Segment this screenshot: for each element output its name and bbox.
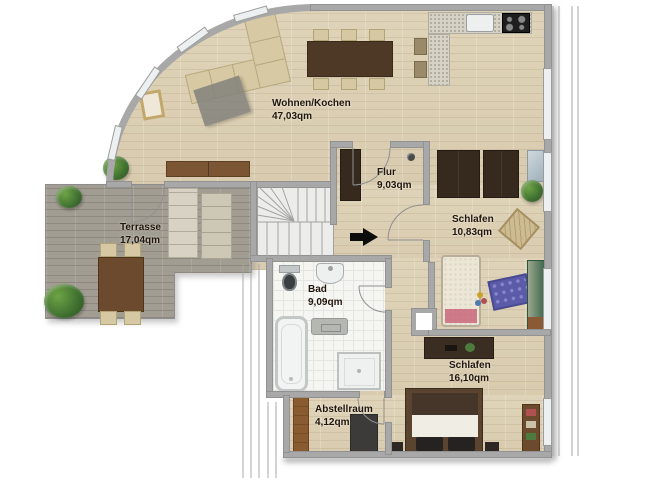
window [543,152,552,212]
room-name: Abstellraum [315,403,373,416]
staircase [257,187,334,258]
wall-chimney-void [416,313,432,330]
desk [424,337,494,359]
outdoor-chair [100,311,117,325]
dining-chair [341,78,357,90]
room-name: Terrasse [120,221,161,234]
dining-chair [341,29,357,41]
wall [330,145,337,225]
toys [477,292,483,298]
room-name: Bad [308,283,342,296]
room-area: 4,12qm [315,416,373,429]
floor-plan: Wohnen/Kochen 47,03qm Flur 9,03qm Schlaf… [0,0,650,480]
kitchen-counter [428,34,450,86]
plant [56,186,82,208]
room-label-schlafen2: Schlafen 16,10qm [449,359,491,385]
bar-stool [414,38,427,55]
outdoor-table [98,257,144,312]
window [543,398,552,446]
wall [283,395,290,453]
sun-lounger [201,193,232,259]
dining-chair [369,29,385,41]
room-name: Schlafen [449,359,491,372]
room-label-bad: Bad 9,09qm [308,283,342,309]
outdoor-chair [124,311,141,325]
wall [385,422,392,455]
window [543,268,552,330]
wooden-door-panel [293,396,309,452]
bedroom-wardrobe [437,150,480,198]
room-label-terrasse: Terrasse 17,04qm [120,221,161,247]
room-area: 17,04qm [120,234,161,247]
room-name: Flur [377,166,411,179]
room-label-flur: Flur 9,03qm [377,166,411,192]
wall [385,258,392,288]
toilet [279,265,300,292]
bar-stool [414,61,427,78]
sun-lounger [168,188,198,258]
wall [250,181,257,262]
room-label-abstellraum: Abstellraum 4,12qm [315,403,373,429]
wall [428,329,551,336]
dining-chair [369,78,385,90]
bathtub [275,316,308,392]
wall [106,181,132,188]
wall [283,451,552,458]
plant [521,180,543,202]
room-area: 9,03qm [377,179,411,192]
wall [106,4,316,188]
smoke-detector-icon [407,153,415,161]
wall [423,240,430,262]
bath-cabinet [311,318,348,335]
wall [330,141,353,148]
room-area: 16,10qm [449,372,491,385]
wall [385,310,392,398]
dining-table [307,41,393,77]
plant [44,284,84,318]
room-area: 9,09qm [308,296,342,309]
hall-wardrobe [340,149,361,201]
washbasin [316,263,344,284]
shelf [522,404,540,454]
mirror [527,150,544,182]
room-name: Schlafen [452,213,494,226]
kitchen-sink [466,14,494,32]
shower [337,352,381,390]
window [543,68,552,140]
child-bed [441,255,481,327]
room-area: 47,03qm [272,110,351,123]
cooktop [502,13,530,33]
double-bed [405,388,483,454]
wall [266,258,273,398]
bedroom-wardrobe [483,150,519,198]
wall [310,4,551,11]
room-label-schlafen1: Schlafen 10,83qm [452,213,494,239]
wall [266,391,360,398]
room-label-wohnen: Wohnen/Kochen 47,03qm [272,97,351,123]
wall [423,141,430,205]
room-name: Wohnen/Kochen [272,97,351,110]
room-area: 10,83qm [452,226,494,239]
outdoor-chair [100,243,117,257]
